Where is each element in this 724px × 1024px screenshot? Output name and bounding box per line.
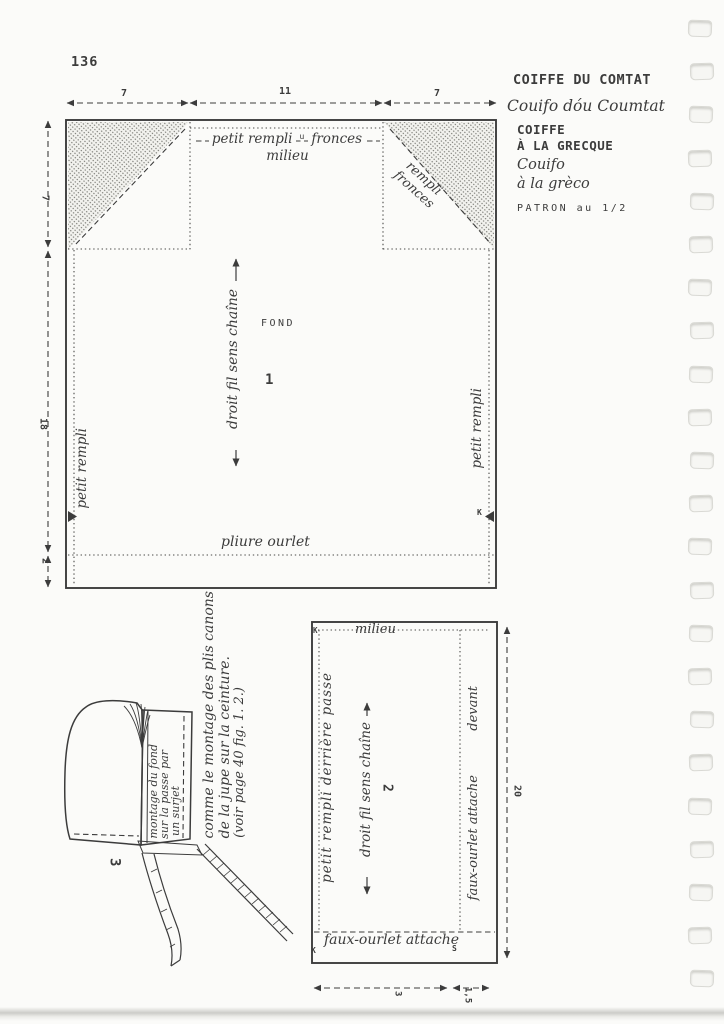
fig1-piece-name: FOND: [261, 319, 295, 330]
page-subtitle-provencal: Couifo dóu Coumtat: [507, 98, 665, 114]
fig1-label-petit-rempli: petit rempli: [209, 131, 296, 147]
fig1-measure-top-left: 7: [121, 89, 127, 100]
binding-hole: [688, 408, 713, 426]
fig1-measure-left-top: 7: [39, 195, 50, 201]
binding-hole: [689, 624, 714, 642]
fig3-note-line3: (voir page 40 fig. 1. 2.): [233, 687, 247, 838]
fig2-piece-number: 2: [380, 784, 394, 792]
fig1-measure-left-mid: 18: [37, 418, 48, 430]
fig3-note-line1: comme le montage des plis canons: [202, 591, 217, 838]
fig1-milieu-label: milieu: [245, 149, 330, 163]
binding-hole: [688, 279, 713, 297]
fig2-k-mark-top: K: [313, 627, 318, 635]
fig2-grainline-label: droit fil sens chaîne: [359, 722, 373, 857]
fig1-top-seam-label: petit rempliufronces: [193, 132, 381, 146]
page-title: COIFFE DU COMTAT: [513, 73, 651, 87]
fig1-notches: [68, 511, 494, 522]
binding-hole: [690, 711, 715, 729]
fig2-left-seam-label: petit rempli derrière passe: [320, 672, 334, 883]
binding-hole: [688, 538, 713, 556]
section-title-line2: À LA GRECQUE: [517, 139, 613, 152]
section-subtitle-line1: Couifo: [517, 158, 565, 173]
section-title-line1: COIFFE: [517, 123, 565, 136]
binding-hole: [689, 365, 714, 383]
binding-hole: [689, 495, 714, 513]
fig3-band-note-line3: un surjet: [170, 786, 182, 836]
fig1-grainline-label: droit fil sens chaîne: [226, 289, 241, 429]
fig2-k-mark-bottom: K: [311, 947, 316, 955]
fig1-k-mark: K: [477, 509, 482, 517]
binding-hole: [688, 149, 713, 167]
binding-hole: [690, 970, 715, 988]
scanned-book-page: .ln{stroke:#3c3c3c;fill:none;} .dim{stro…: [0, 0, 724, 1024]
section-subtitle-line2: à la grèco: [517, 177, 590, 192]
page-number: 136: [71, 55, 98, 69]
binding-hole: [690, 63, 715, 81]
fig3-tie-front: [142, 853, 181, 966]
binding-hole: [690, 192, 715, 210]
binding-hole: [690, 452, 715, 470]
fig3-piece-number: 3: [107, 858, 122, 866]
binding-hole: [688, 797, 713, 815]
fig3-tie-back: [197, 844, 293, 941]
fig2-s-mark: S: [452, 945, 457, 953]
binding-hole: [689, 236, 714, 254]
binding-hole: [690, 581, 715, 599]
fig2-milieu-label: milieu: [355, 623, 396, 637]
fig1-measure-top-right: 7: [434, 89, 440, 100]
fig1-measure-left-bottom: 2: [39, 558, 50, 564]
fig1-notch-mark: u: [300, 132, 305, 141]
fig2-measure-right: 20: [511, 785, 522, 797]
fig1-label-fronces: fronces: [308, 131, 365, 147]
fig2-measure-bottom-long: 3: [392, 991, 401, 996]
scan-edge-shadow: [0, 1007, 724, 1021]
fig3-note-line2: de la jupe sur la ceinture.: [218, 656, 233, 838]
fig1-hem-label: pliure ourlet: [221, 535, 310, 550]
pattern-line-art: .ln{stroke:#3c3c3c;fill:none;} .dim{stro…: [0, 0, 724, 1024]
binding-hole: [688, 927, 713, 945]
fig2-measure-bottom-short: 1,5: [462, 987, 471, 1003]
binding-hole: [689, 106, 714, 124]
fig1-gathered-corner-left: [68, 122, 189, 249]
binding-hole: [688, 668, 713, 686]
fig1-side-label-right: petit rempli: [470, 388, 484, 469]
fig2-devant-label: devant: [467, 686, 481, 731]
fig1-measure-top-mid: 11: [279, 87, 291, 98]
binding-hole: [690, 840, 715, 858]
fig2-faux-ourlet-bottom-label: faux-ourlet attache: [324, 933, 459, 948]
fig1-piece-number: 1: [265, 373, 273, 388]
binding-hole: [688, 20, 713, 38]
binding-hole: [690, 322, 715, 340]
binding-hole: [689, 884, 714, 902]
binding-hole: [689, 754, 714, 772]
fig2-faux-ourlet-side-label: faux-ourlet attache: [467, 775, 481, 900]
scale-note: PATRON au 1/2: [517, 204, 628, 215]
fig1-side-label-left: petit rempli: [75, 428, 89, 509]
